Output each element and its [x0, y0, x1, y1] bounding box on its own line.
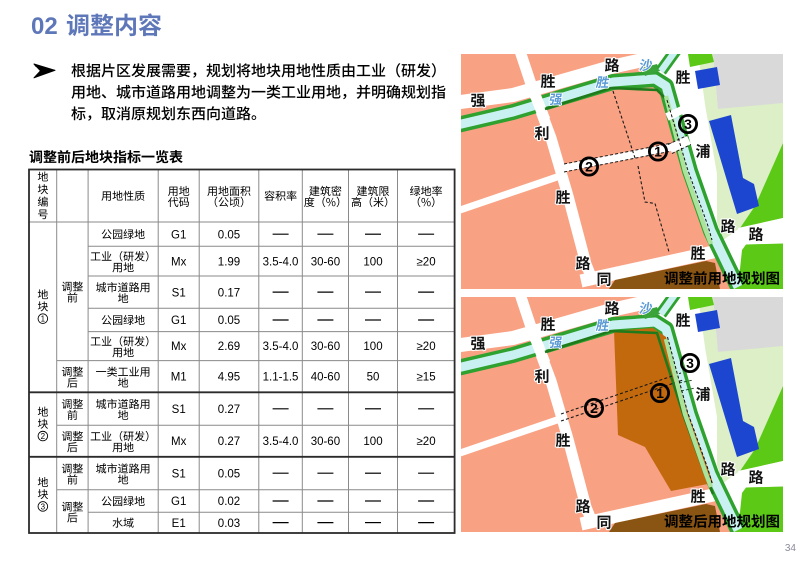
- svg-text:G1: G1: [171, 315, 186, 327]
- svg-text:2.69: 2.69: [218, 341, 240, 353]
- svg-text:0.05: 0.05: [218, 229, 240, 241]
- svg-text:E1: E1: [172, 518, 186, 530]
- svg-text:≥20: ≥20: [416, 436, 435, 448]
- svg-text:0.05: 0.05: [218, 315, 240, 327]
- svg-text:≥15: ≥15: [416, 372, 435, 384]
- svg-text:0.05: 0.05: [218, 468, 240, 480]
- svg-text:1.99: 1.99: [218, 256, 240, 268]
- svg-text:1: 1: [654, 144, 662, 160]
- svg-text:30-60: 30-60: [311, 256, 340, 268]
- svg-text:0.03: 0.03: [218, 518, 240, 530]
- svg-text:G1: G1: [171, 229, 186, 241]
- svg-text:30-60: 30-60: [311, 436, 340, 448]
- svg-text:3.5-4.0: 3.5-4.0: [263, 256, 299, 268]
- svg-text:34: 34: [785, 543, 797, 554]
- svg-text:S1: S1: [172, 468, 186, 480]
- svg-text:0.02: 0.02: [218, 496, 240, 508]
- svg-text:3: 3: [684, 116, 692, 132]
- svg-text:50: 50: [367, 372, 380, 384]
- svg-text:0.27: 0.27: [218, 404, 240, 416]
- svg-text:1: 1: [41, 315, 46, 324]
- svg-text:Mx: Mx: [171, 341, 187, 353]
- svg-text:S1: S1: [172, 404, 186, 416]
- svg-text:3.5-4.0: 3.5-4.0: [263, 436, 299, 448]
- svg-text:30-60: 30-60: [311, 341, 340, 353]
- svg-text:3: 3: [686, 355, 694, 371]
- svg-text:100: 100: [363, 436, 382, 448]
- svg-text:0.17: 0.17: [218, 287, 240, 299]
- svg-text:100: 100: [363, 341, 382, 353]
- svg-text:02: 02: [31, 13, 58, 40]
- svg-text:1.1-1.5: 1.1-1.5: [263, 372, 299, 384]
- svg-text:1: 1: [656, 385, 664, 401]
- svg-text:≥20: ≥20: [416, 341, 435, 353]
- svg-text:100: 100: [363, 256, 382, 268]
- svg-text:2: 2: [585, 159, 593, 175]
- svg-text:4.95: 4.95: [218, 372, 240, 384]
- svg-text:40-60: 40-60: [311, 372, 340, 384]
- svg-text:S1: S1: [172, 287, 186, 299]
- svg-text:2: 2: [41, 432, 46, 441]
- svg-text:0.27: 0.27: [218, 436, 240, 448]
- svg-text:Mx: Mx: [171, 436, 187, 448]
- svg-text:3.5-4.0: 3.5-4.0: [263, 341, 299, 353]
- svg-text:M1: M1: [171, 372, 187, 384]
- svg-text:2: 2: [590, 400, 598, 416]
- svg-text:Mx: Mx: [171, 256, 187, 268]
- svg-text:3: 3: [41, 502, 46, 511]
- svg-text:≥20: ≥20: [416, 256, 435, 268]
- svg-text:G1: G1: [171, 496, 186, 508]
